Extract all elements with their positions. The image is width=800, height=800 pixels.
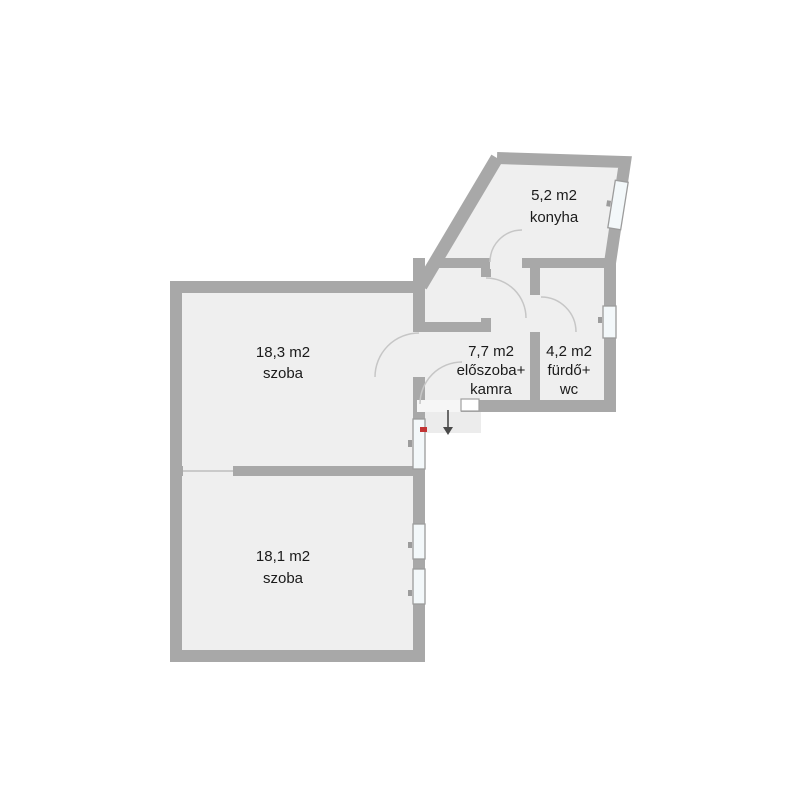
label-szoba-felso-name: szoba	[263, 365, 304, 382]
floorplan-svg: 5,2 m2 konyha 18,3 m2 szoba 7,7 m2 elősz…	[0, 0, 800, 800]
szoba-also-window-1-handle-icon	[408, 542, 412, 548]
szoba-also-window-1-glass	[413, 524, 425, 559]
label-konyha-area: 5,2 m2	[531, 187, 577, 204]
bathroom-window-glass	[603, 306, 616, 338]
bathroom-window-handle-icon	[598, 317, 602, 323]
label-szoba-felso-area: 18,3 m2	[256, 344, 310, 361]
label-eloszoba-name: előszoba+	[457, 362, 526, 379]
pantry-door-opening	[480, 277, 491, 318]
entrance-opening	[417, 400, 461, 412]
entrance-marker-icon	[420, 427, 427, 432]
label-furdo-name2: wc	[559, 381, 579, 398]
szoba-also-window-2-glass	[413, 569, 425, 604]
label-eloszoba-area: 7,7 m2	[468, 343, 514, 360]
label-furdo-area: 4,2 m2	[546, 343, 592, 360]
label-konyha-name: konyha	[530, 209, 579, 226]
label-furdo-name: fürdő+	[548, 362, 591, 379]
label-szoba-also-area: 18,1 m2	[256, 548, 310, 565]
floorplan-canvas: 5,2 m2 konyha 18,3 m2 szoba 7,7 m2 elősz…	[0, 0, 800, 800]
entrance-door-leaf	[461, 399, 479, 411]
room-door-opening	[412, 332, 426, 377]
bathroom-door-opening	[529, 295, 541, 332]
kitchen-door-opening	[490, 257, 522, 269]
szoba-felso-window-handle-icon	[408, 440, 412, 447]
szoba-felso-window-glass	[413, 419, 425, 469]
label-szoba-also-name: szoba	[263, 570, 304, 587]
label-eloszoba-name2: kamra	[470, 381, 512, 398]
szoba-also-window-2-handle-icon	[408, 590, 412, 596]
